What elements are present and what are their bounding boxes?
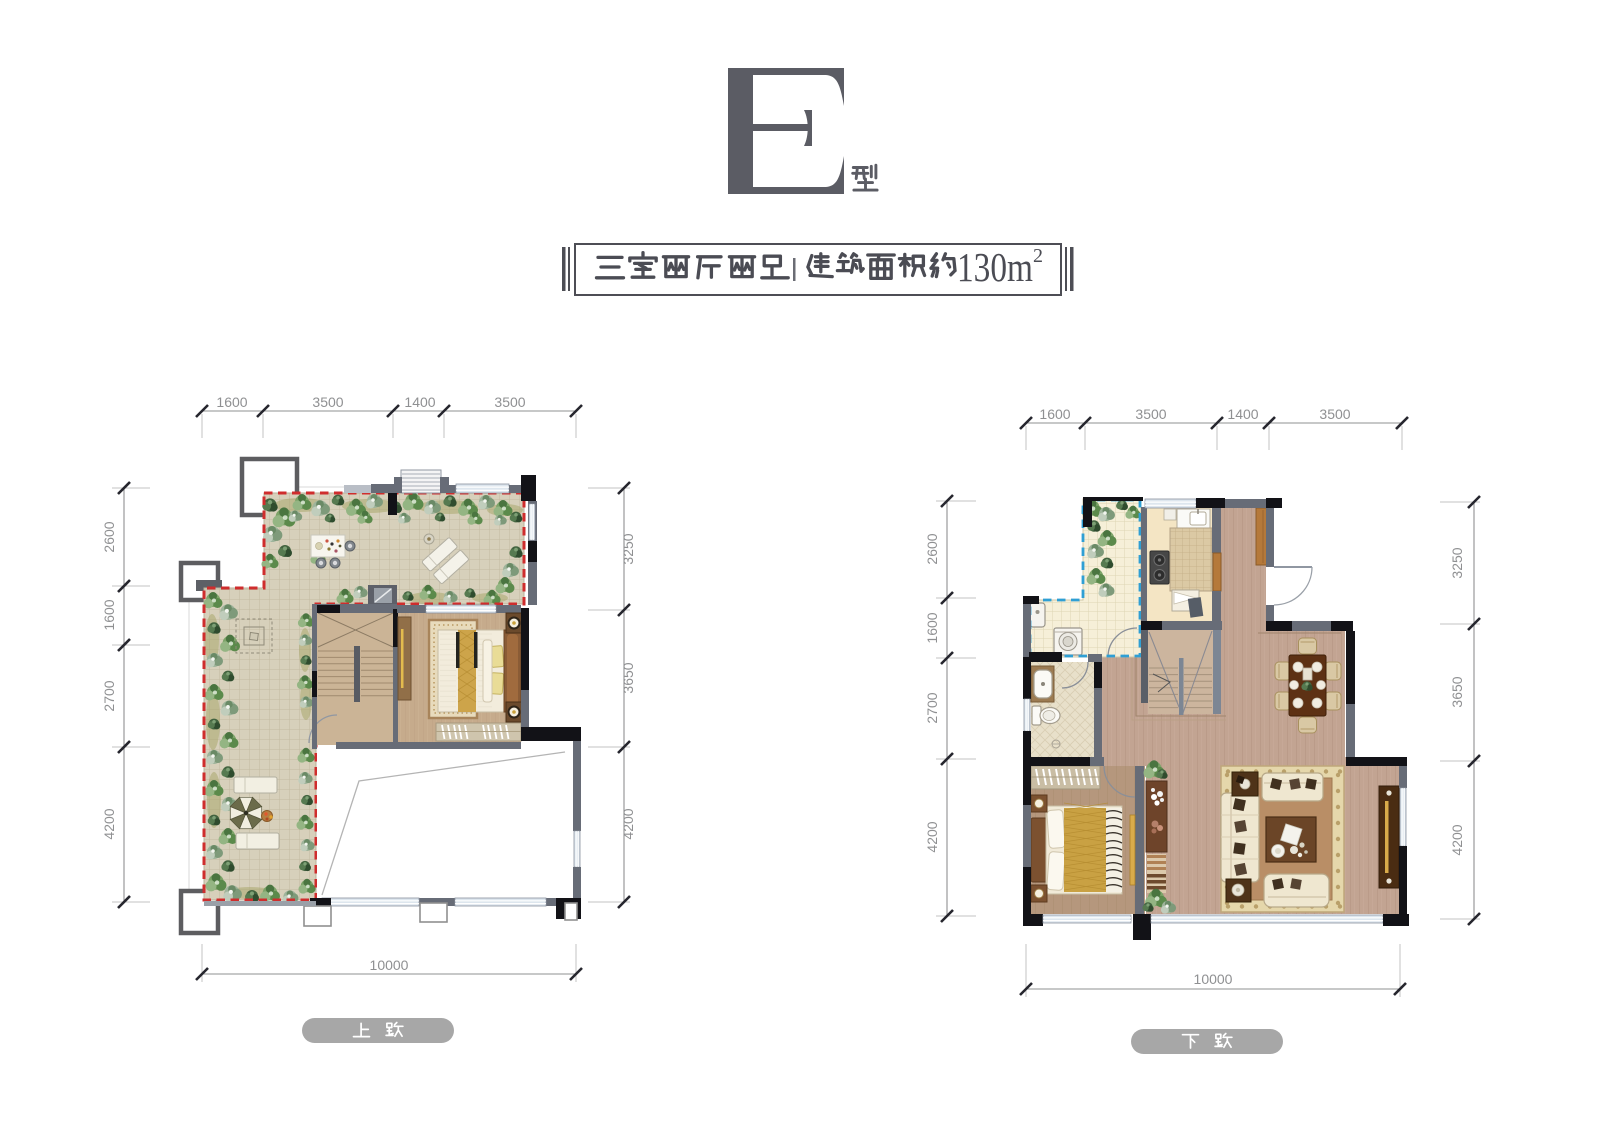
svg-text:3650: 3650 (1449, 676, 1465, 707)
svg-text:2: 2 (1033, 245, 1043, 267)
svg-text:3500: 3500 (494, 394, 525, 410)
svg-text:3250: 3250 (620, 533, 636, 564)
svg-text:130m: 130m (957, 244, 1033, 290)
svg-text:2600: 2600 (101, 521, 117, 552)
svg-text:1600: 1600 (101, 599, 117, 630)
svg-text:1400: 1400 (1227, 406, 1258, 422)
svg-text:2600: 2600 (924, 533, 940, 564)
svg-text:3500: 3500 (1135, 406, 1166, 422)
svg-text:2700: 2700 (924, 692, 940, 723)
svg-text:4200: 4200 (620, 808, 636, 839)
svg-text:3500: 3500 (1319, 406, 1350, 422)
svg-text:1400: 1400 (404, 394, 435, 410)
svg-text:1600: 1600 (216, 394, 247, 410)
svg-text:3500: 3500 (312, 394, 343, 410)
svg-text:4200: 4200 (924, 821, 940, 852)
svg-text:3650: 3650 (620, 662, 636, 693)
svg-text:1600: 1600 (1039, 406, 1070, 422)
svg-text:2700: 2700 (101, 680, 117, 711)
svg-text:4200: 4200 (101, 808, 117, 839)
svg-text:1600: 1600 (924, 612, 940, 643)
svg-text:10000: 10000 (1194, 971, 1233, 987)
svg-text:10000: 10000 (370, 957, 409, 973)
svg-text:4200: 4200 (1449, 824, 1465, 855)
svg-text:3250: 3250 (1449, 547, 1465, 578)
